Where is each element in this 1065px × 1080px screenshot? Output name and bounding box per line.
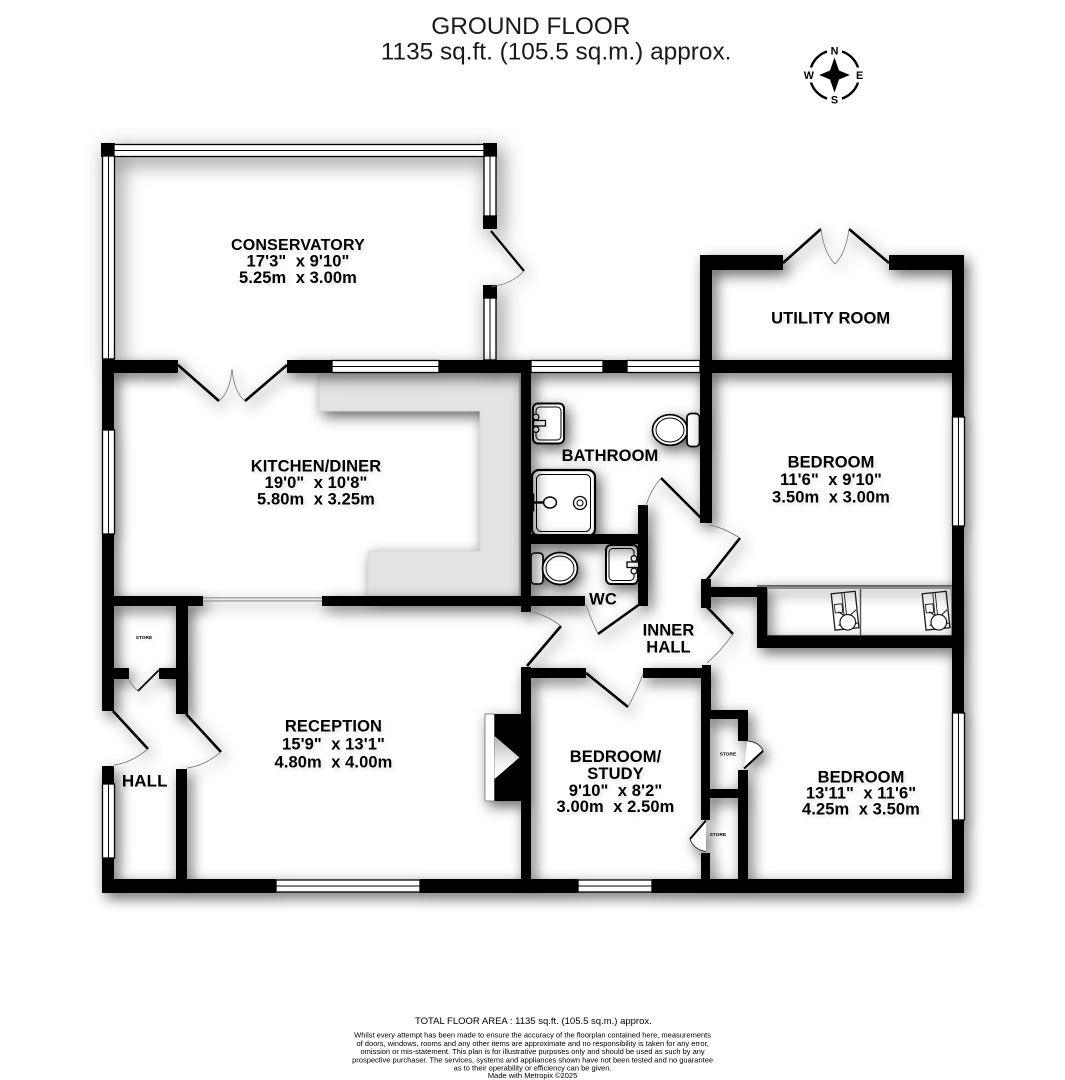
svg-text:15'9" x 13'1": 15'9" x 13'1" [282, 736, 385, 754]
svg-text:1135 sq.ft. (105.5 sq.m.) appr: 1135 sq.ft. (105.5 sq.m.) approx. [381, 39, 732, 66]
svg-text:17'3" x 9'10": 17'3" x 9'10" [247, 253, 350, 271]
svg-text:E: E [856, 70, 863, 82]
svg-text:STORE: STORE [710, 832, 727, 838]
svg-text:STUDY: STUDY [587, 765, 643, 783]
svg-text:11'6" x 9'10": 11'6" x 9'10" [780, 471, 882, 489]
svg-text:BATHROOM: BATHROOM [562, 447, 659, 465]
svg-text:TOTAL FLOOR AREA : 1135 sq.ft.: TOTAL FLOOR AREA : 1135 sq.ft. (105.5 sq… [415, 1016, 652, 1027]
svg-text:CONSERVATORY: CONSERVATORY [231, 237, 365, 254]
svg-text:BEDROOM: BEDROOM [788, 454, 875, 472]
svg-text:RECEPTION: RECEPTION [285, 718, 382, 736]
svg-text:STORE: STORE [136, 635, 153, 641]
svg-text:N: N [831, 45, 839, 57]
svg-text:GROUND FLOOR: GROUND FLOOR [431, 13, 630, 40]
svg-text:W: W [804, 70, 815, 82]
svg-text:3.00m x 2.50m: 3.00m x 2.50m [557, 798, 675, 816]
svg-text:4.80m x 4.00m: 4.80m x 4.00m [275, 754, 393, 772]
svg-text:STORE: STORE [720, 752, 737, 758]
svg-text:5.25m x 3.00m: 5.25m x 3.00m [239, 269, 357, 287]
svg-text:HALL: HALL [122, 771, 168, 790]
svg-text:5.80m x 3.25m: 5.80m x 3.25m [257, 491, 375, 509]
svg-text:19'0" x 10'8": 19'0" x 10'8" [265, 474, 368, 492]
svg-text:4.25m x 3.50m: 4.25m x 3.50m [802, 801, 920, 819]
svg-text:BEDROOM/: BEDROOM/ [570, 748, 662, 766]
svg-text:UTILITY ROOM: UTILITY ROOM [771, 310, 890, 328]
svg-text:WC: WC [589, 591, 617, 609]
svg-text:S: S [831, 95, 838, 107]
svg-text:Made with Metropix ©2025: Made with Metropix ©2025 [488, 1071, 577, 1080]
svg-text:HALL: HALL [646, 639, 690, 657]
svg-text:3.50m x 3.00m: 3.50m x 3.00m [772, 489, 890, 507]
svg-text:KITCHEN/DINER: KITCHEN/DINER [251, 458, 382, 476]
svg-text:INNER: INNER [643, 622, 695, 640]
